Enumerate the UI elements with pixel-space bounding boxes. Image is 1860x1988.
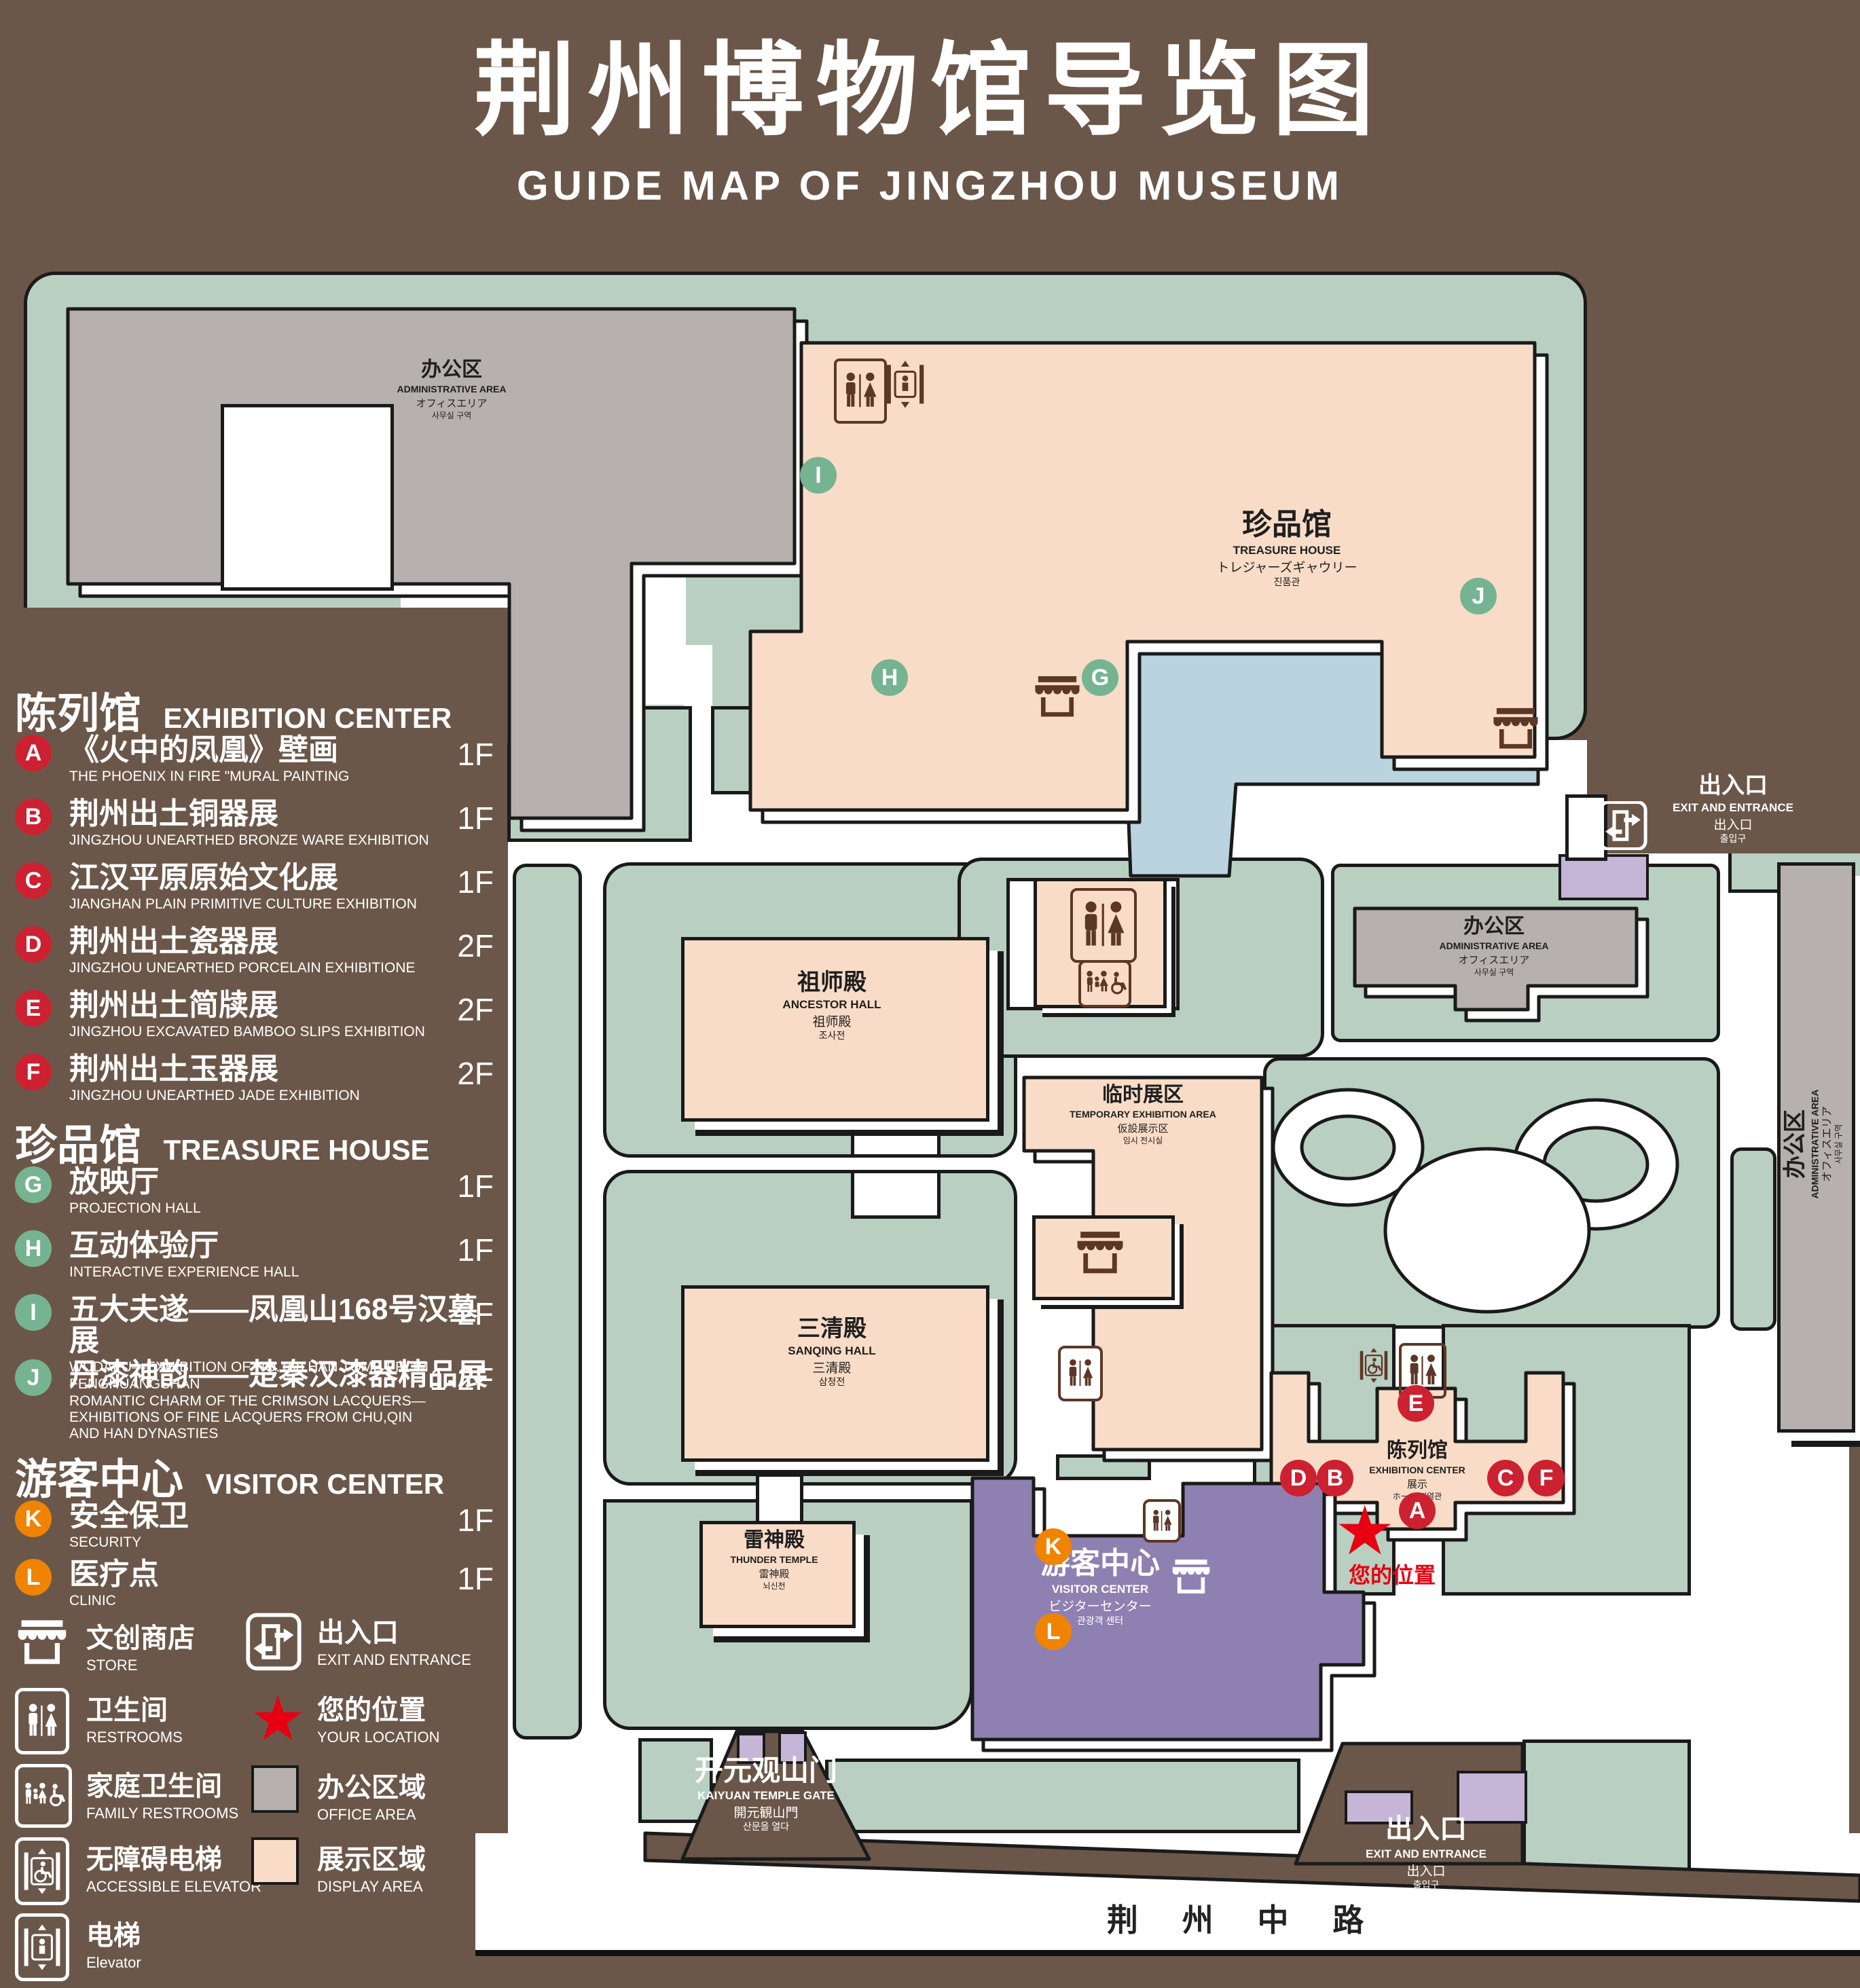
badge-B: B <box>15 798 52 835</box>
display-area-swatch <box>251 1837 299 1885</box>
garden-pond <box>1385 1149 1589 1312</box>
legend-item-D: D 荆州出土瓷器展JINGZHOU UNEARTHED PORCELAIN EX… <box>15 926 494 976</box>
badge-I: I <box>15 1294 52 1331</box>
your-location-label: 您的位置 <box>1349 1558 1436 1589</box>
badge-E: E <box>15 990 52 1027</box>
museum-guide-poster: { "title": {"zh": "荆州博物馆导览图", "en": "GUI… <box>0 0 1860 1988</box>
marker-I: I <box>800 457 837 494</box>
store-icon <box>1074 1228 1126 1279</box>
legend-facility-your-location: ★ 您的位置YOUR LOCATION <box>246 1688 440 1746</box>
legend-item-E: E 荆州出土简牍展JINGZHOU EXCAVATED BAMBOO SLIPS… <box>15 990 494 1040</box>
office-area-swatch <box>251 1765 299 1813</box>
legend-facility-exit: 出入口EXIT AND ENTRANCE <box>246 1610 471 1669</box>
exit-right-label: 出入口 EXIT AND ENTRANCE 出入口 출입구 <box>1673 773 1793 845</box>
legend-item-G: G 放映厅PROJECTION HALL 1F <box>15 1166 494 1217</box>
elevator-icon <box>884 356 926 413</box>
marker-H: H <box>871 659 908 696</box>
ancestor-hall-label: 祖师殿 ANCESTOR HALL 祖师殿 조사전 <box>782 970 881 1042</box>
legend-item-H: H 互动体验厅INTERACTIVE EXPERIENCE HALL 1F <box>15 1230 494 1281</box>
exit-bottom-label: 出入口 EXIT AND ENTRANCE 出入口 출입구 <box>1366 1814 1487 1891</box>
admin-strip-label: 办公区 ADMINISTRATIVE AREA オフィスエリア 사무실 구역 <box>1781 1090 1843 1199</box>
legend-item-F: F 荆州出土玉器展JINGZHOU UNEARTHED JADE EXHIBIT… <box>15 1054 494 1104</box>
store-icon <box>1170 1556 1212 1598</box>
legend-item-K: K 安全保卫SECURITY 1F <box>15 1501 494 1551</box>
legend-facility-office-area: 办公区域OFFICE AREA <box>246 1765 426 1824</box>
marker-G: G <box>1082 659 1118 696</box>
badge-H: H <box>15 1230 52 1267</box>
exit-right-building <box>1558 854 1649 900</box>
restroom-icon <box>1143 1499 1181 1543</box>
exit-icon <box>246 1610 302 1673</box>
legend-item-B: B 荆州出土铜器展JINGZHOU UNEARTHED BRONZE WARE … <box>15 798 494 849</box>
marker-E: E <box>1398 1385 1434 1422</box>
marker-C: C <box>1487 1460 1524 1496</box>
badge-A: A <box>15 735 52 771</box>
badge-F: F <box>15 1054 52 1090</box>
marker-A: A <box>1399 1492 1436 1529</box>
badge-J: J <box>15 1359 52 1396</box>
exit-icon <box>1596 801 1650 850</box>
temporary-exhibition-label: 临时展区 TEMPORARY EXHIBITION AREA 仮設展示区 임시 … <box>1070 1084 1216 1146</box>
badge-K: K <box>15 1501 52 1537</box>
badge-D: D <box>15 926 52 963</box>
badge-G: G <box>15 1166 52 1203</box>
legend-facility-store: 文创商店STORE <box>15 1616 195 1674</box>
legend-section-visitor-center: 游客中心 VISITOR CENTER <box>15 1445 444 1506</box>
marker-K: K <box>1035 1528 1072 1565</box>
legend-facility-restrooms: 卫生间RESTROOMS <box>15 1688 183 1746</box>
store-icon <box>1491 701 1541 758</box>
legend-section-exhibition-center: 陈列馆 EXHIBITION CENTER <box>15 679 452 740</box>
legend-facility-accessible-elevator: 无障碍电梯ACCESSIBLE ELEVATOR <box>15 1837 261 1896</box>
badge-L: L <box>15 1559 52 1596</box>
accessible-elevator-icon <box>15 1837 69 1905</box>
legend-item-L: L 医疗点CLINIC 1F <box>15 1559 494 1609</box>
road-label: 荆 州 中 路 <box>1107 1896 1381 1940</box>
your-location-star: ★ <box>1334 1497 1396 1565</box>
legend-facility-display-area: 展示区域DISPLAY AREA <box>246 1837 426 1896</box>
legend-facility-family-restrooms: 家庭卫生间FAMILY RESTROOMS <box>15 1764 238 1822</box>
thunder-temple-label: 雷神殿 THUNDER TEMPLE 雷神殿 뇌신전 <box>730 1529 818 1591</box>
your-location-star: ★ <box>250 1688 306 1750</box>
accessible-elevator-icon <box>1358 1344 1389 1386</box>
family-restroom-icon <box>1078 960 1131 1008</box>
admin-topleft-label: 办公区 ADMINISTRATIVE AREA オフィスエリア 사무실 구역 <box>397 358 507 421</box>
family-restrooms-icon <box>15 1764 72 1828</box>
marker-L: L <box>1035 1613 1072 1650</box>
legend-section-treasure-house: 珍品馆 TREASURE HOUSE <box>15 1111 430 1172</box>
marker-B: B <box>1317 1460 1353 1496</box>
restroom-icon <box>1058 1346 1103 1401</box>
gate-label: 开元观山门 KAIYUAN TEMPLE GATE 開元観山門 산문을 열다 <box>695 1754 837 1833</box>
legend-item-A: A 《火中的凤凰》壁画THE PHOENIX IN FIRE "MURAL PA… <box>15 735 494 785</box>
legend-facility-elevator: 电梯Elevator <box>15 1913 141 1972</box>
badge-C: C <box>15 862 52 899</box>
sanqing-hall-label: 三清殿 SANQING HALL 三清殿 삼청전 <box>788 1316 875 1388</box>
restroom-icon <box>834 358 887 424</box>
store-icon <box>1032 669 1082 726</box>
admin-mid-label: 办公区 ADMINISTRATIVE AREA オフィスエリア 사무실 구역 <box>1440 915 1549 978</box>
restroom-icon <box>1070 888 1137 963</box>
store-icon <box>15 1616 69 1670</box>
marker-D: D <box>1280 1460 1317 1496</box>
marker-J: J <box>1460 578 1497 614</box>
admin-courtyard <box>221 404 394 591</box>
treasure-house-label: 珍品馆 TREASURE HOUSE トレジャーズギャウリー 진품관 <box>1216 508 1357 587</box>
legend-item-J: J 丹漆神韵——楚秦汉漆器精品展ROMANTIC CHARM OF THE CR… <box>15 1359 494 1443</box>
marker-F: F <box>1528 1460 1565 1496</box>
restrooms-icon <box>15 1688 69 1754</box>
elevator-icon <box>15 1913 69 1981</box>
legend-item-C: C 江汉平原原始文化展JIANGHAN PLAIN PRIMITIVE CULT… <box>15 862 494 913</box>
